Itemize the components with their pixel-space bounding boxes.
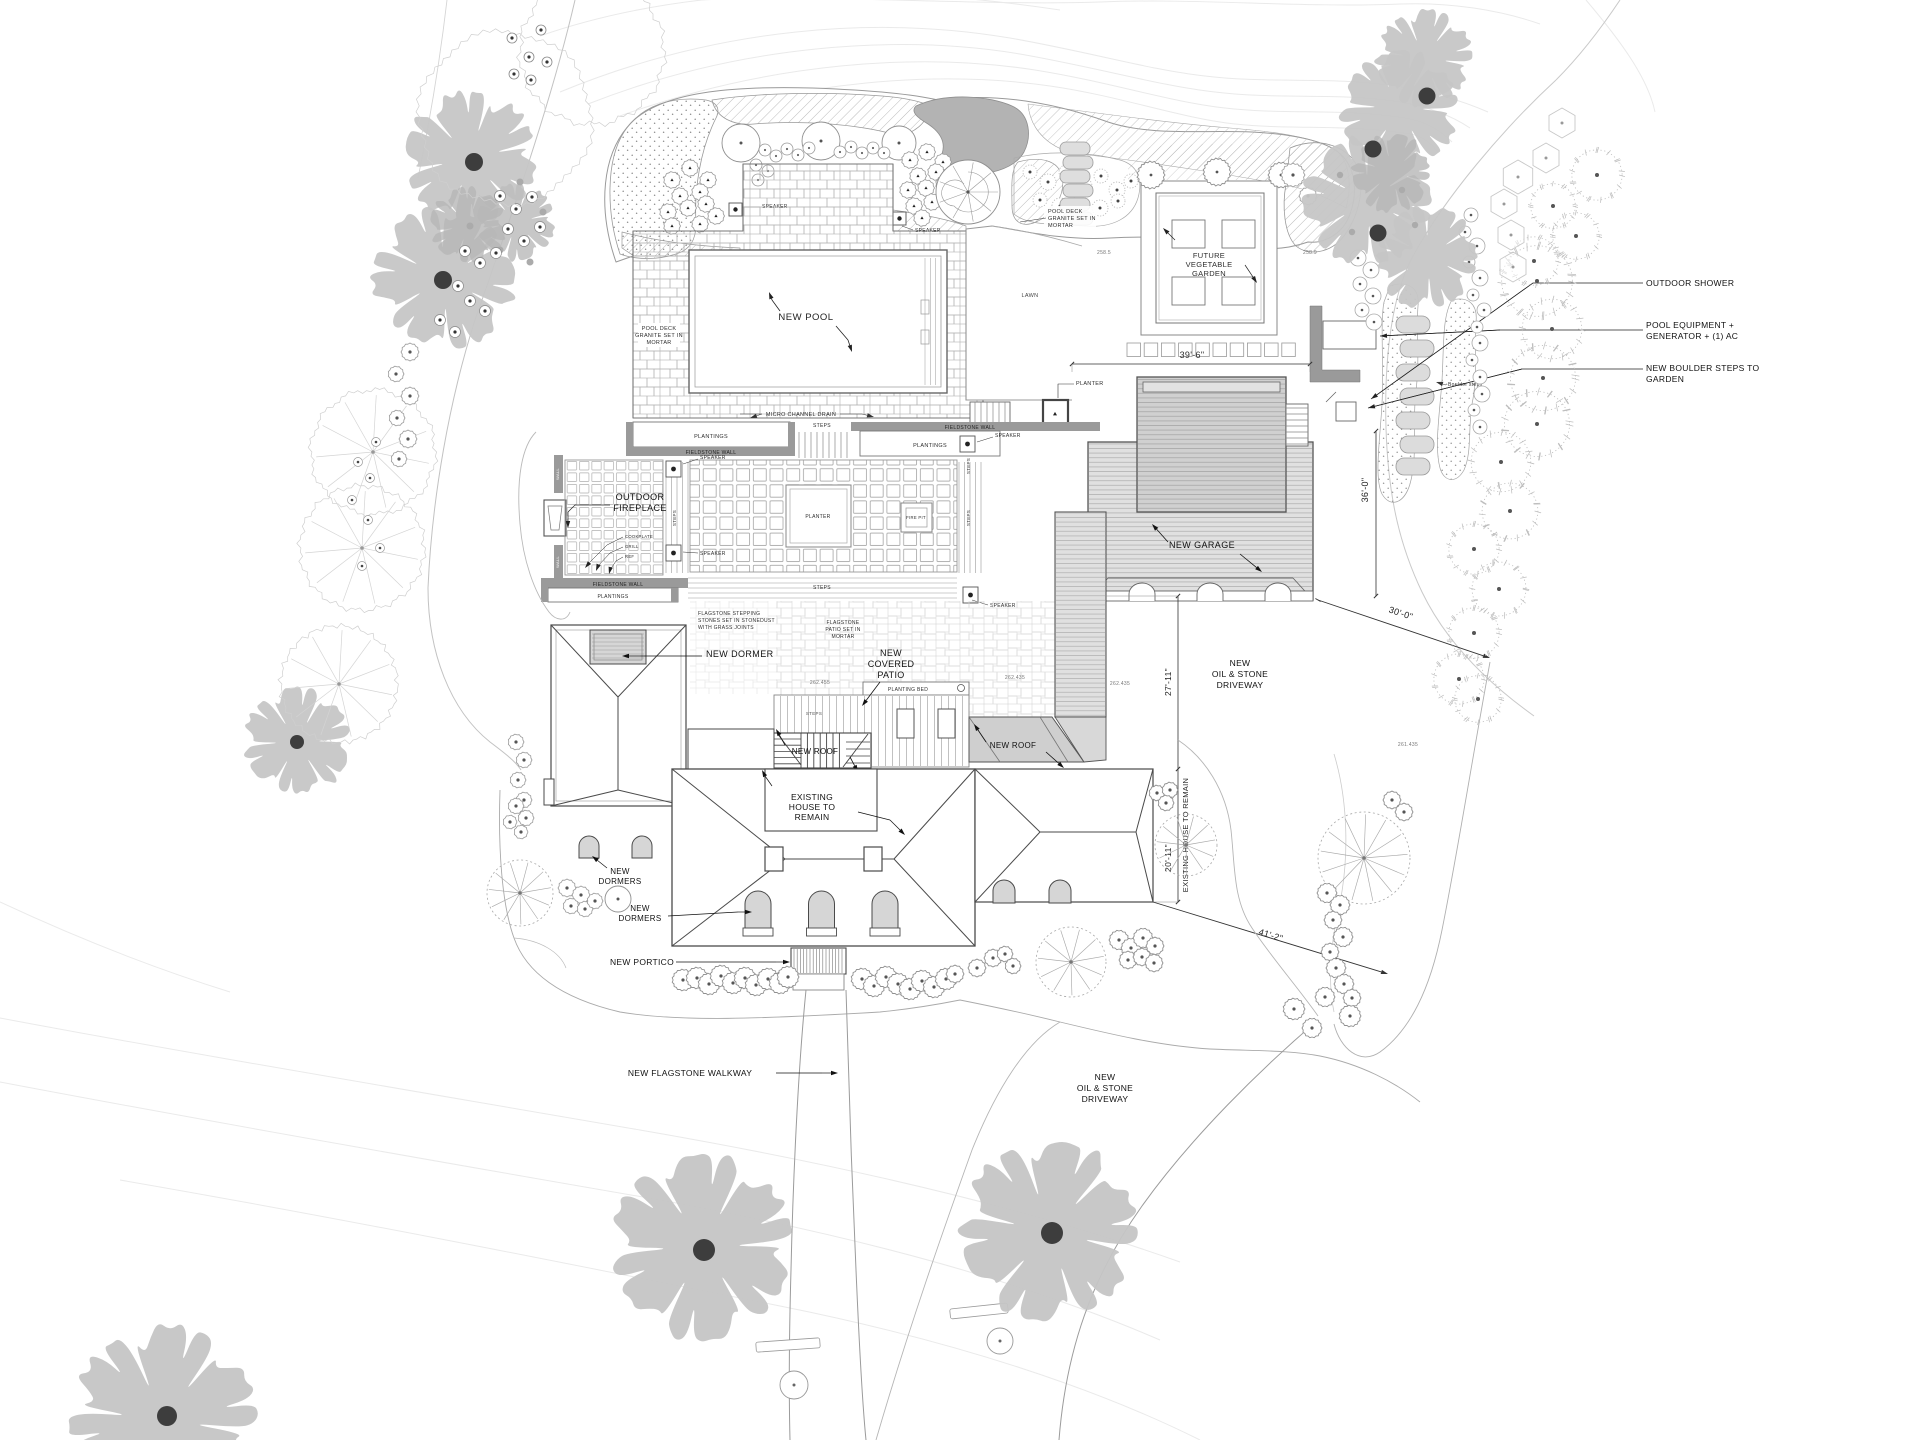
svg-text:OUTDOOR: OUTDOOR [616, 492, 665, 502]
svg-text:262.435: 262.435 [1110, 681, 1130, 687]
svg-text:WITH GRASS JOINTS: WITH GRASS JOINTS [698, 625, 754, 631]
svg-text:NEW: NEW [610, 867, 630, 876]
svg-text:NEW: NEW [1095, 1072, 1116, 1082]
svg-text:39'-6": 39'-6" [1180, 350, 1205, 360]
svg-text:GRILL: GRILL [625, 544, 639, 549]
svg-text:PLANTINGS: PLANTINGS [597, 594, 628, 600]
svg-text:GENERATOR + (1) AC: GENERATOR + (1) AC [1646, 331, 1738, 341]
svg-text:262.435: 262.435 [1005, 675, 1025, 681]
svg-text:WALL: WALL [555, 556, 560, 568]
svg-text:REMAIN: REMAIN [795, 812, 830, 822]
svg-text:DORMERS: DORMERS [599, 877, 642, 886]
svg-text:MORTAR: MORTAR [1048, 223, 1073, 229]
svg-text:LAWN: LAWN [1022, 293, 1039, 299]
svg-text:FUTURE: FUTURE [1193, 251, 1225, 260]
svg-text:27'-11": 27'-11" [1163, 668, 1173, 696]
svg-text:20'-11": 20'-11" [1163, 844, 1173, 872]
svg-text:OIL & STONE: OIL & STONE [1212, 669, 1268, 679]
svg-text:NEW ROOF: NEW ROOF [792, 747, 838, 756]
svg-text:DRIVEWAY: DRIVEWAY [1217, 680, 1264, 690]
svg-text:NEW: NEW [630, 904, 650, 913]
svg-text:FIREPLACE: FIREPLACE [613, 503, 667, 513]
svg-text:PATIO SET IN: PATIO SET IN [825, 627, 860, 633]
svg-text:NEW PORTICO: NEW PORTICO [610, 957, 674, 967]
svg-text:OIL & STONE: OIL & STONE [1077, 1083, 1133, 1093]
svg-text:POOL DECK: POOL DECK [1048, 209, 1083, 215]
svg-text:VEGETABLE: VEGETABLE [1186, 260, 1233, 269]
svg-text:261.435: 261.435 [1398, 742, 1418, 748]
svg-text:STONES SET IN STONEDUST: STONES SET IN STONEDUST [698, 618, 775, 624]
svg-text:FIRE PIT: FIRE PIT [906, 515, 926, 520]
svg-text:MORTAR: MORTAR [646, 340, 671, 346]
svg-text:HOUSE TO: HOUSE TO [789, 802, 836, 812]
svg-text:STEPS: STEPS [813, 585, 831, 591]
svg-text:STEPS: STEPS [813, 423, 831, 429]
svg-text:PLANTER: PLANTER [1076, 381, 1103, 387]
svg-text:MICRO CHANNEL DRAIN: MICRO CHANNEL DRAIN [766, 412, 836, 418]
svg-text:STEPS: STEPS [966, 458, 971, 474]
svg-text:258.5: 258.5 [1097, 250, 1111, 256]
svg-text:PATIO: PATIO [877, 670, 904, 680]
svg-text:258.9: 258.9 [1303, 250, 1317, 256]
svg-text:NEW: NEW [880, 648, 902, 658]
svg-text:GRANITE SET IN: GRANITE SET IN [1048, 216, 1096, 222]
svg-text:NEW DORMER: NEW DORMER [706, 649, 774, 659]
svg-text:COOKPLATE: COOKPLATE [625, 534, 653, 539]
svg-text:STEPS: STEPS [966, 510, 971, 526]
svg-text:COVERED: COVERED [868, 659, 915, 669]
svg-text:WALL: WALL [555, 468, 560, 480]
svg-text:NEW GARAGE: NEW GARAGE [1169, 540, 1235, 550]
svg-text:STEPS: STEPS [672, 510, 677, 526]
svg-text:FIELDSTONE WALL: FIELDSTONE WALL [945, 425, 996, 431]
svg-text:SPEAKER: SPEAKER [995, 433, 1021, 439]
svg-text:FLAGSTONE STEPPING: FLAGSTONE STEPPING [698, 611, 760, 617]
svg-text:POOL DECK: POOL DECK [642, 326, 677, 332]
svg-text:DORMERS: DORMERS [619, 914, 662, 923]
svg-text:SPEAKER: SPEAKER [700, 455, 726, 461]
svg-text:PLANTINGS: PLANTINGS [694, 434, 728, 440]
svg-text:SPEAKER: SPEAKER [700, 551, 726, 557]
svg-text:PLANTINGS: PLANTINGS [913, 443, 947, 449]
svg-text:REF: REF [625, 554, 634, 559]
svg-text:PLANTER: PLANTER [805, 514, 830, 520]
svg-text:GRANITE SET IN: GRANITE SET IN [635, 333, 683, 339]
svg-text:EXISTING: EXISTING [791, 792, 833, 802]
svg-text:POOL EQUIPMENT +: POOL EQUIPMENT + [1646, 320, 1734, 330]
svg-text:OUTDOOR SHOWER: OUTDOOR SHOWER [1646, 278, 1734, 288]
svg-text:262.455: 262.455 [810, 680, 830, 686]
svg-text:MORTAR: MORTAR [831, 634, 854, 640]
svg-text:NEW BOULDER STEPS TO: NEW BOULDER STEPS TO [1646, 363, 1759, 373]
svg-text:PLANTING BED: PLANTING BED [888, 687, 928, 693]
svg-text:NEW ROOF: NEW ROOF [990, 741, 1036, 750]
svg-text:GARDEN: GARDEN [1192, 269, 1226, 278]
svg-text:NEW: NEW [1230, 658, 1251, 668]
svg-text:NEW FLAGSTONE WALKWAY: NEW FLAGSTONE WALKWAY [628, 1068, 752, 1078]
svg-text:36'-0": 36'-0" [1360, 478, 1370, 503]
svg-text:FIELDSTONE WALL: FIELDSTONE WALL [593, 582, 644, 588]
svg-text:DRIVEWAY: DRIVEWAY [1082, 1094, 1129, 1104]
svg-text:FLAGSTONE: FLAGSTONE [827, 620, 860, 626]
svg-text:GARDEN: GARDEN [1646, 374, 1684, 384]
svg-text:STEPS: STEPS [806, 711, 822, 716]
svg-text:NEW POOL: NEW POOL [778, 312, 833, 323]
